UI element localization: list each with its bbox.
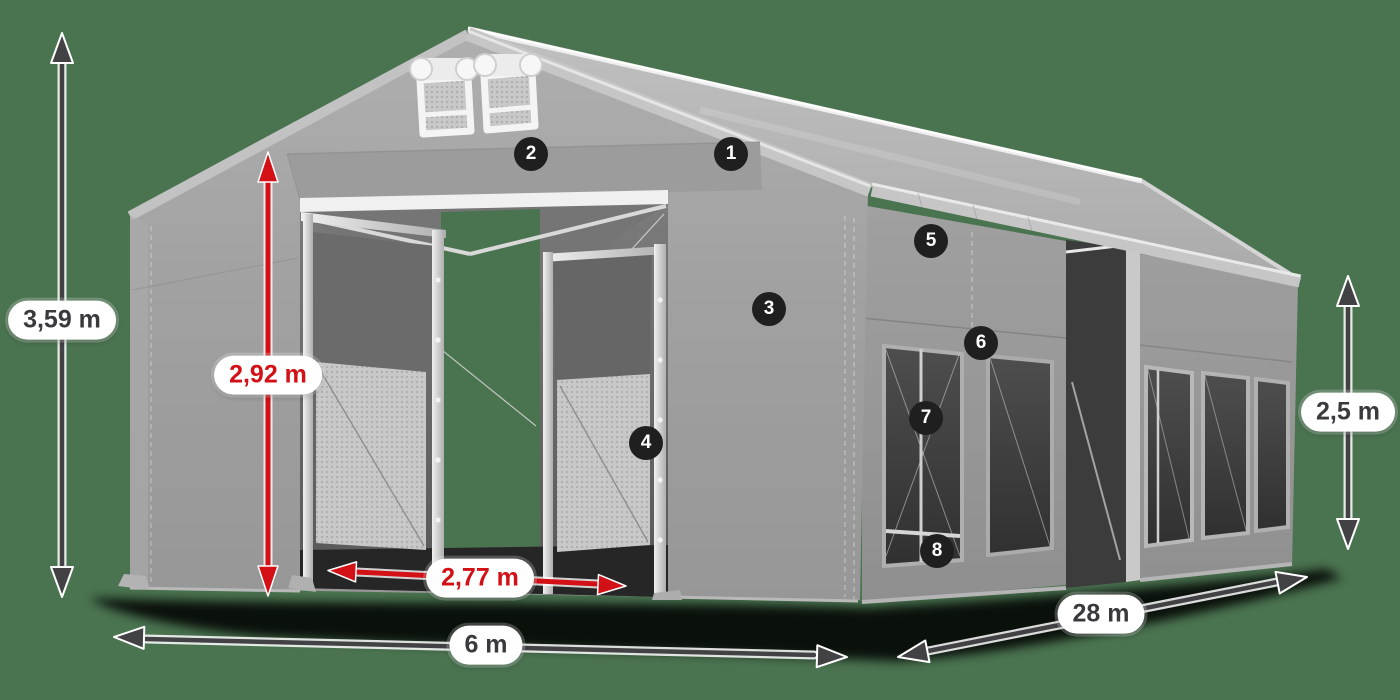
dimension-label-front-width: 6 m <box>449 626 522 665</box>
vent-window-icon <box>474 54 542 130</box>
dimension-label-entrance-width: 2,77 m <box>426 559 534 598</box>
callout-badge-5[interactable]: 5 <box>914 224 948 258</box>
callout-badge-3[interactable]: 3 <box>752 292 786 326</box>
entrance <box>288 190 682 600</box>
callout-badge-4[interactable]: 4 <box>629 426 663 460</box>
entrance-door-left <box>301 212 446 590</box>
dimension-label-side-wall-height: 2,5 m <box>1301 393 1395 432</box>
module-passage <box>1066 240 1126 588</box>
tent-illustration <box>0 0 1400 700</box>
dimension-label-side-length: 28 m <box>1058 595 1145 634</box>
dimension-label-total-height: 3,59 m <box>8 301 116 340</box>
callout-badge-2[interactable]: 2 <box>514 137 548 171</box>
entrance-door-right <box>543 244 666 598</box>
callout-badge-8[interactable]: 8 <box>920 534 954 568</box>
callout-badge-6[interactable]: 6 <box>964 326 998 360</box>
vent-window-icon <box>410 58 478 134</box>
product-diagram: 3,59 m 2,92 m 2,77 m 6 m 28 m 2,5 m 1 2 … <box>0 0 1400 700</box>
callout-badge-7[interactable]: 7 <box>909 401 943 435</box>
dimension-label-entrance-height: 2,92 m <box>214 356 322 395</box>
callout-badge-1[interactable]: 1 <box>714 137 748 171</box>
